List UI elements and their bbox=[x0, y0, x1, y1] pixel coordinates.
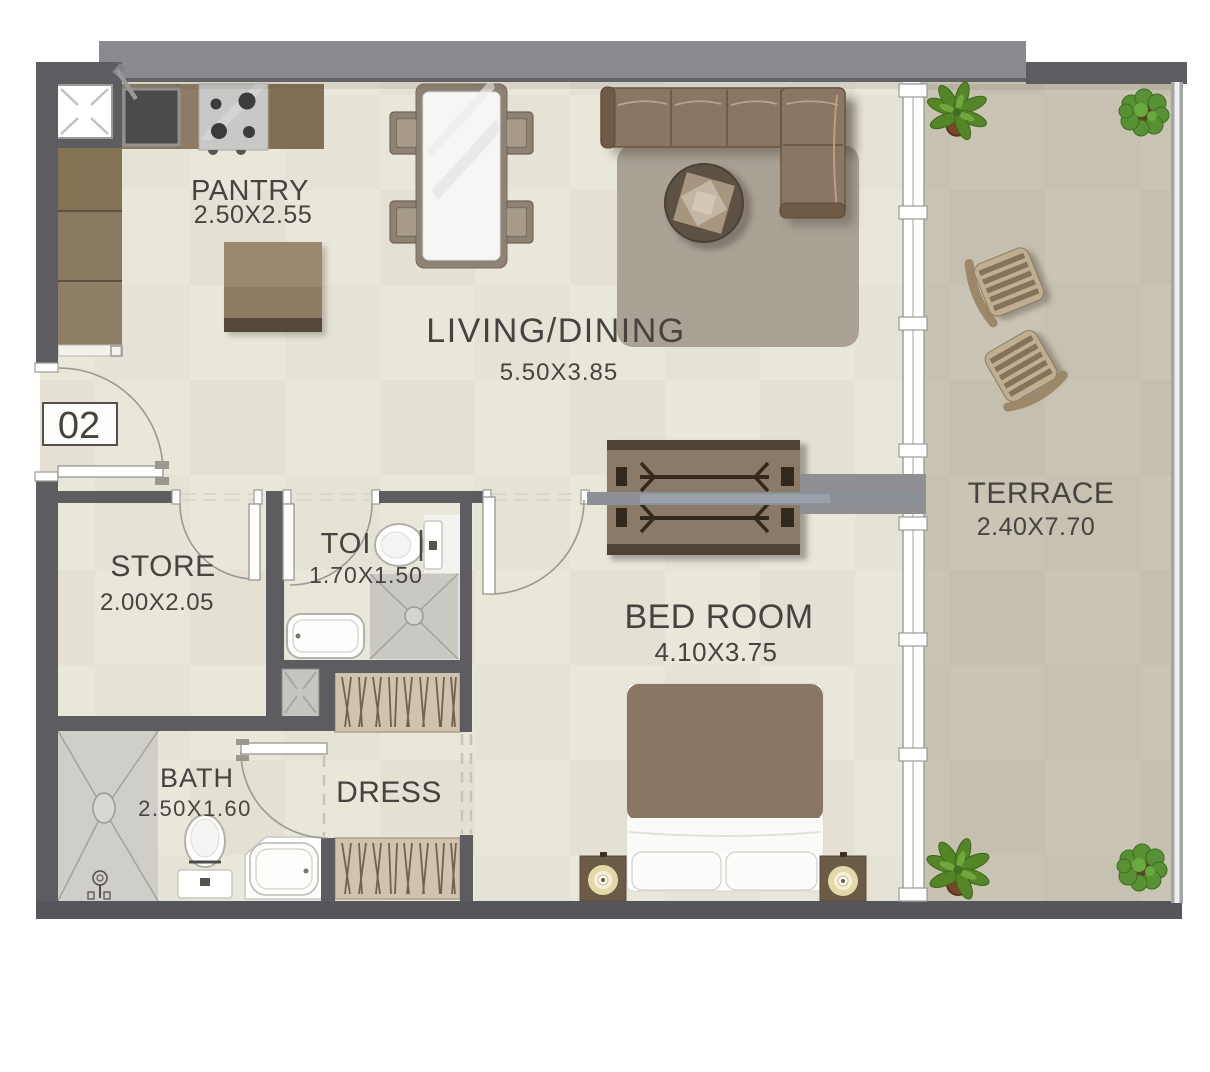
svg-text:DRESS: DRESS bbox=[336, 776, 442, 809]
svg-text:BATH: BATH bbox=[160, 763, 234, 793]
svg-text:2.50X1.60: 2.50X1.60 bbox=[138, 796, 252, 821]
svg-text:4.10X3.75: 4.10X3.75 bbox=[654, 637, 777, 667]
svg-text:2.00X2.05: 2.00X2.05 bbox=[100, 589, 214, 616]
svg-text:1.70X1.50: 1.70X1.50 bbox=[309, 562, 423, 588]
svg-text:TERRACE: TERRACE bbox=[968, 477, 1115, 510]
svg-text:BED ROOM: BED ROOM bbox=[624, 598, 813, 636]
svg-text:5.50X3.85: 5.50X3.85 bbox=[500, 359, 618, 386]
svg-text:02: 02 bbox=[58, 405, 100, 447]
svg-text:LIVING/DINING: LIVING/DINING bbox=[426, 312, 685, 350]
svg-text:TOI: TOI bbox=[321, 528, 372, 560]
svg-text:2.40X7.70: 2.40X7.70 bbox=[977, 513, 1096, 541]
svg-text:2.50X2.55: 2.50X2.55 bbox=[194, 201, 313, 229]
svg-text:STORE: STORE bbox=[110, 550, 215, 583]
